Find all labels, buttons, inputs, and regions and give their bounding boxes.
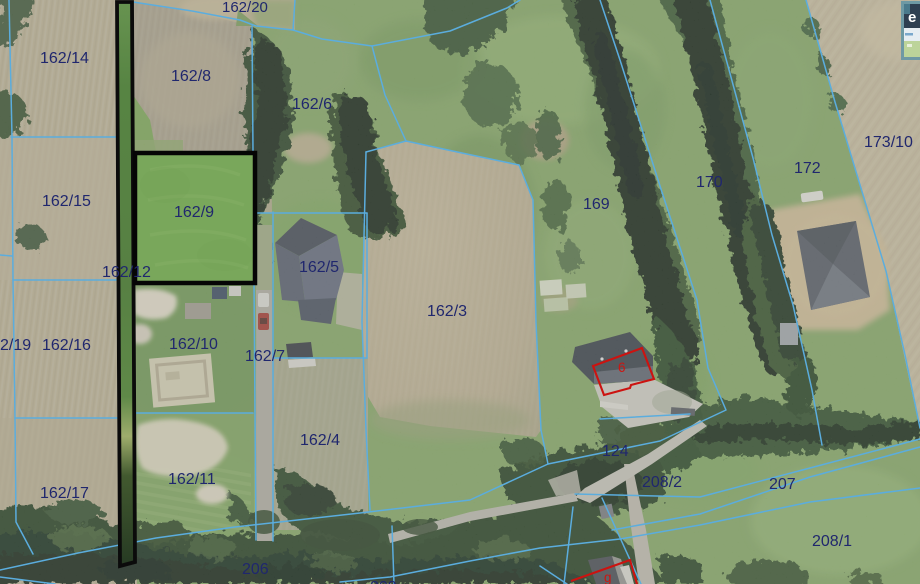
svg-text:162/14: 162/14: [40, 50, 89, 67]
svg-text:162/9: 162/9: [174, 204, 214, 221]
svg-text:162/5: 162/5: [299, 259, 339, 276]
svg-text:207: 207: [769, 476, 796, 493]
svg-text:162/17: 162/17: [40, 485, 89, 502]
svg-text:e: e: [908, 9, 916, 26]
svg-text:208/1: 208/1: [812, 533, 852, 550]
svg-text:208/2: 208/2: [642, 474, 682, 491]
svg-text:162/3: 162/3: [427, 303, 467, 320]
svg-text:g: g: [604, 570, 612, 584]
svg-text:206: 206: [242, 561, 269, 578]
svg-text:170: 170: [696, 174, 723, 191]
svg-text:162/8: 162/8: [171, 68, 211, 85]
svg-text:162/16: 162/16: [42, 337, 91, 354]
svg-text:162/11: 162/11: [168, 471, 216, 488]
svg-text:162/12: 162/12: [102, 264, 151, 281]
svg-text:173/10: 173/10: [864, 134, 913, 151]
svg-text:162/4: 162/4: [300, 432, 340, 449]
svg-text:162/6: 162/6: [292, 96, 332, 113]
svg-text:172: 172: [794, 160, 821, 177]
svg-text:124: 124: [602, 443, 629, 460]
svg-text:2/19: 2/19: [0, 337, 31, 354]
svg-text:162/10: 162/10: [169, 336, 218, 353]
svg-text:162/15: 162/15: [42, 193, 91, 210]
svg-text:6: 6: [618, 360, 626, 375]
svg-text:169: 169: [583, 196, 610, 213]
svg-text:162/7: 162/7: [245, 348, 285, 365]
svg-text:162/20: 162/20: [222, 0, 268, 16]
svg-text:208: 208: [370, 579, 397, 584]
